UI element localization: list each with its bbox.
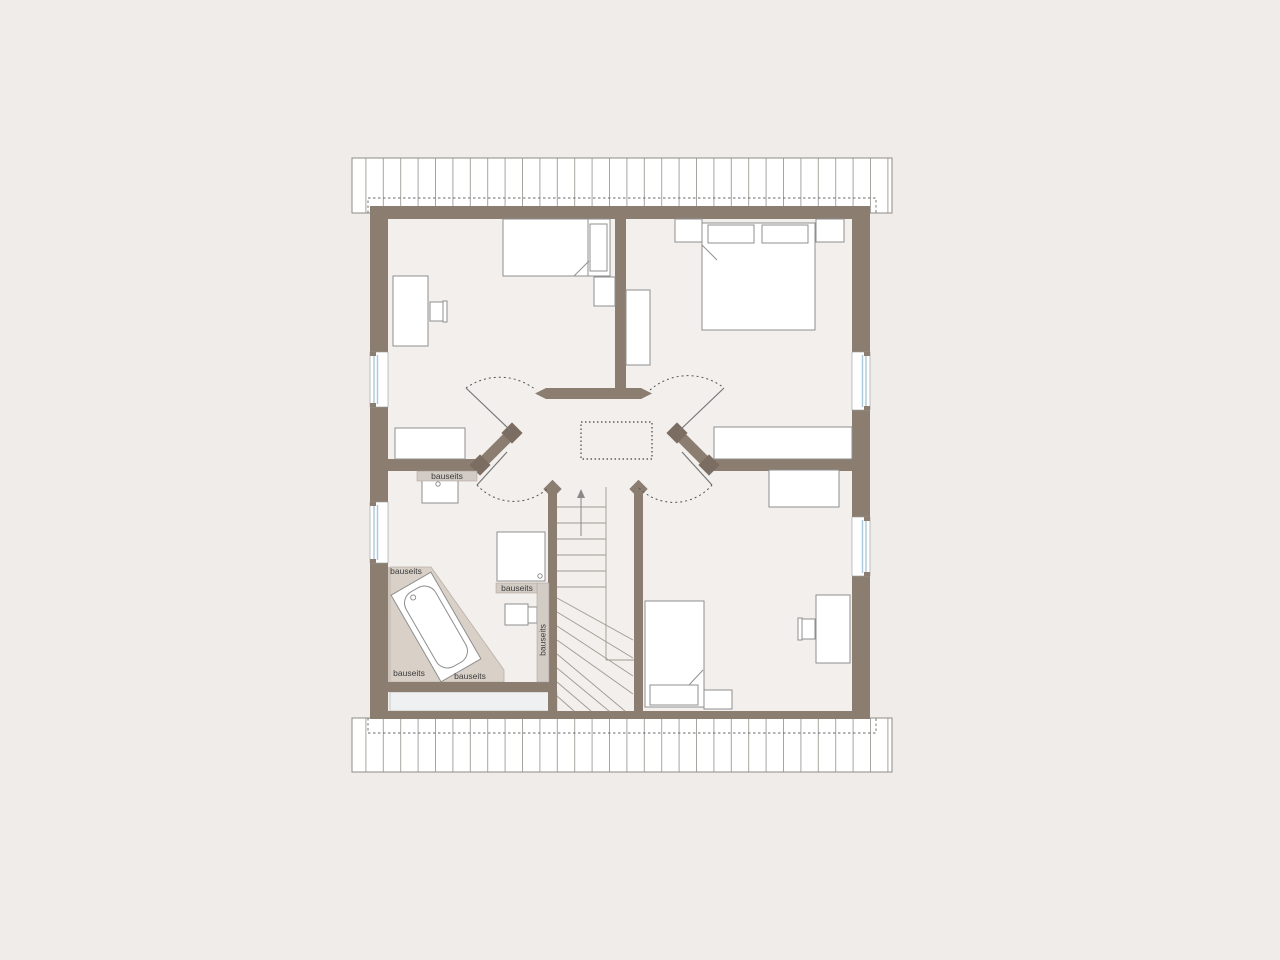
window-right-1 xyxy=(852,352,870,410)
dresser xyxy=(769,470,839,507)
pillow xyxy=(762,225,808,243)
sideboard xyxy=(714,427,852,459)
shower xyxy=(497,532,545,581)
chair-back xyxy=(443,301,447,322)
roof-eave-top xyxy=(352,158,892,213)
bauseits-label-vertical: bauseits xyxy=(538,624,548,656)
window-right-2 xyxy=(852,517,870,576)
right-rooms-divider-wall xyxy=(700,459,852,471)
chair-back xyxy=(798,618,802,640)
wall-between-top-bedrooms xyxy=(615,219,626,388)
bauseits-label: bauseits xyxy=(454,671,486,681)
nightstand xyxy=(816,219,844,242)
pillow xyxy=(650,685,698,705)
wall-bottom xyxy=(370,711,870,719)
floor-plan-page: bauseits bauseits bauseits bauseits baus… xyxy=(0,0,1280,960)
toilet-bowl xyxy=(505,604,528,625)
roof-eave-bottom xyxy=(352,718,892,772)
sideboard xyxy=(395,428,465,459)
eave-niche xyxy=(390,692,557,711)
floor-plan-canvas: bauseits bauseits bauseits bauseits baus… xyxy=(0,0,1280,960)
bauseits-label: bauseits xyxy=(393,668,425,678)
bauseits-label: bauseits xyxy=(501,583,533,593)
wardrobe xyxy=(626,290,650,365)
stairwell-west-wall xyxy=(548,487,557,711)
chair-seat xyxy=(430,302,443,321)
bathroom-south-wall xyxy=(388,682,557,692)
pillow xyxy=(590,224,607,271)
bauseits-label: bauseits xyxy=(431,471,463,481)
hall-top-wall xyxy=(535,388,652,399)
nightstand xyxy=(704,690,732,709)
wall-right xyxy=(852,206,870,711)
desk xyxy=(393,276,428,346)
window-left-2 xyxy=(370,502,388,563)
pillow xyxy=(708,225,754,243)
wall-top xyxy=(370,206,870,219)
chair-seat xyxy=(802,619,815,639)
stairwell-east-wall xyxy=(634,487,643,711)
bauseits-label: bauseits xyxy=(390,566,422,576)
window-left-1 xyxy=(370,352,388,407)
nightstand xyxy=(675,219,702,242)
left-room-south-wall xyxy=(388,459,476,471)
toilet-tank xyxy=(528,607,537,623)
wall-left xyxy=(370,206,388,711)
nightstand xyxy=(594,277,615,306)
desk xyxy=(816,595,850,663)
